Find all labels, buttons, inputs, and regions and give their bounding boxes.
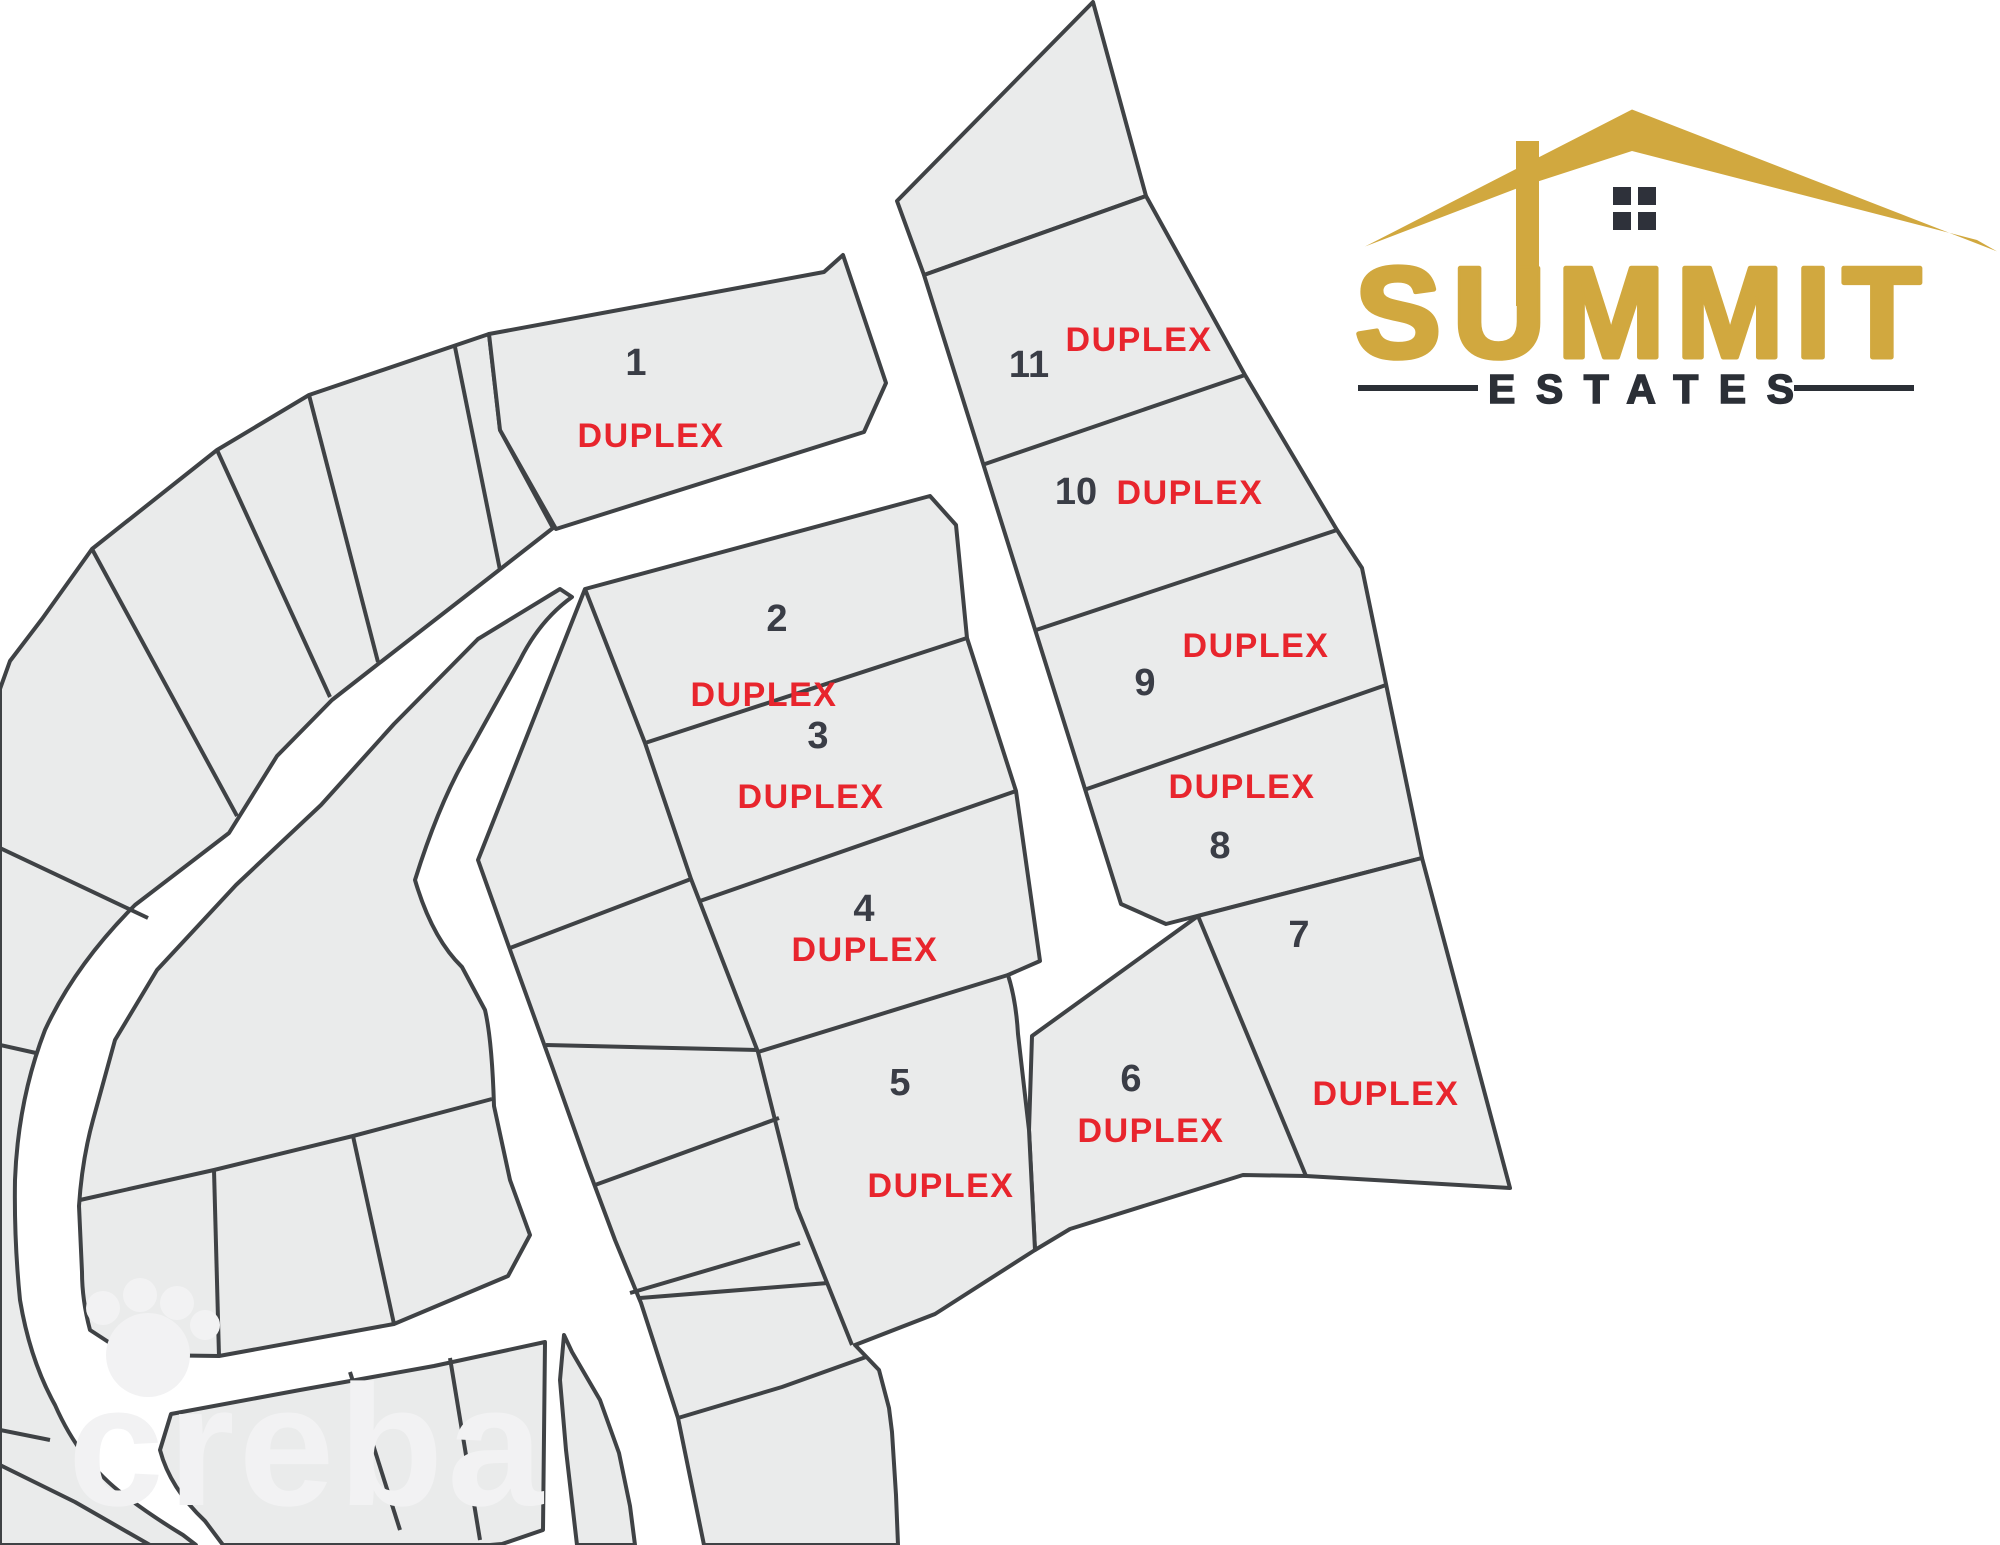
svg-text:6: 6	[1120, 1058, 1141, 1100]
svg-text:DUPLEX: DUPLEX	[792, 931, 939, 969]
svg-text:11: 11	[1009, 344, 1049, 386]
svg-text:7: 7	[1288, 914, 1309, 956]
svg-text:DUPLEX: DUPLEX	[1078, 1112, 1225, 1150]
svg-text:DUPLEX: DUPLEX	[1117, 474, 1264, 512]
svg-text:creba: creba	[68, 1350, 547, 1542]
svg-text:DUPLEX: DUPLEX	[1066, 321, 1213, 359]
svg-text:10: 10	[1055, 471, 1097, 513]
svg-text:9: 9	[1134, 662, 1155, 704]
svg-text:2: 2	[766, 598, 787, 640]
svg-text:ESTATES: ESTATES	[1488, 366, 1815, 412]
svg-text:DUPLEX: DUPLEX	[868, 1167, 1015, 1205]
svg-text:1: 1	[625, 342, 646, 384]
svg-text:DUPLEX: DUPLEX	[691, 676, 838, 714]
svg-text:DUPLEX: DUPLEX	[578, 417, 725, 455]
svg-text:8: 8	[1209, 825, 1230, 867]
svg-text:DUPLEX: DUPLEX	[1183, 627, 1330, 665]
svg-text:DUPLEX: DUPLEX	[1169, 768, 1316, 806]
svg-text:3: 3	[807, 715, 828, 757]
svg-text:SUMMIT: SUMMIT	[1355, 241, 1933, 385]
svg-text:DUPLEX: DUPLEX	[1313, 1075, 1460, 1113]
svg-text:4: 4	[853, 888, 874, 930]
svg-text:5: 5	[889, 1062, 910, 1104]
svg-text:DUPLEX: DUPLEX	[738, 778, 885, 816]
